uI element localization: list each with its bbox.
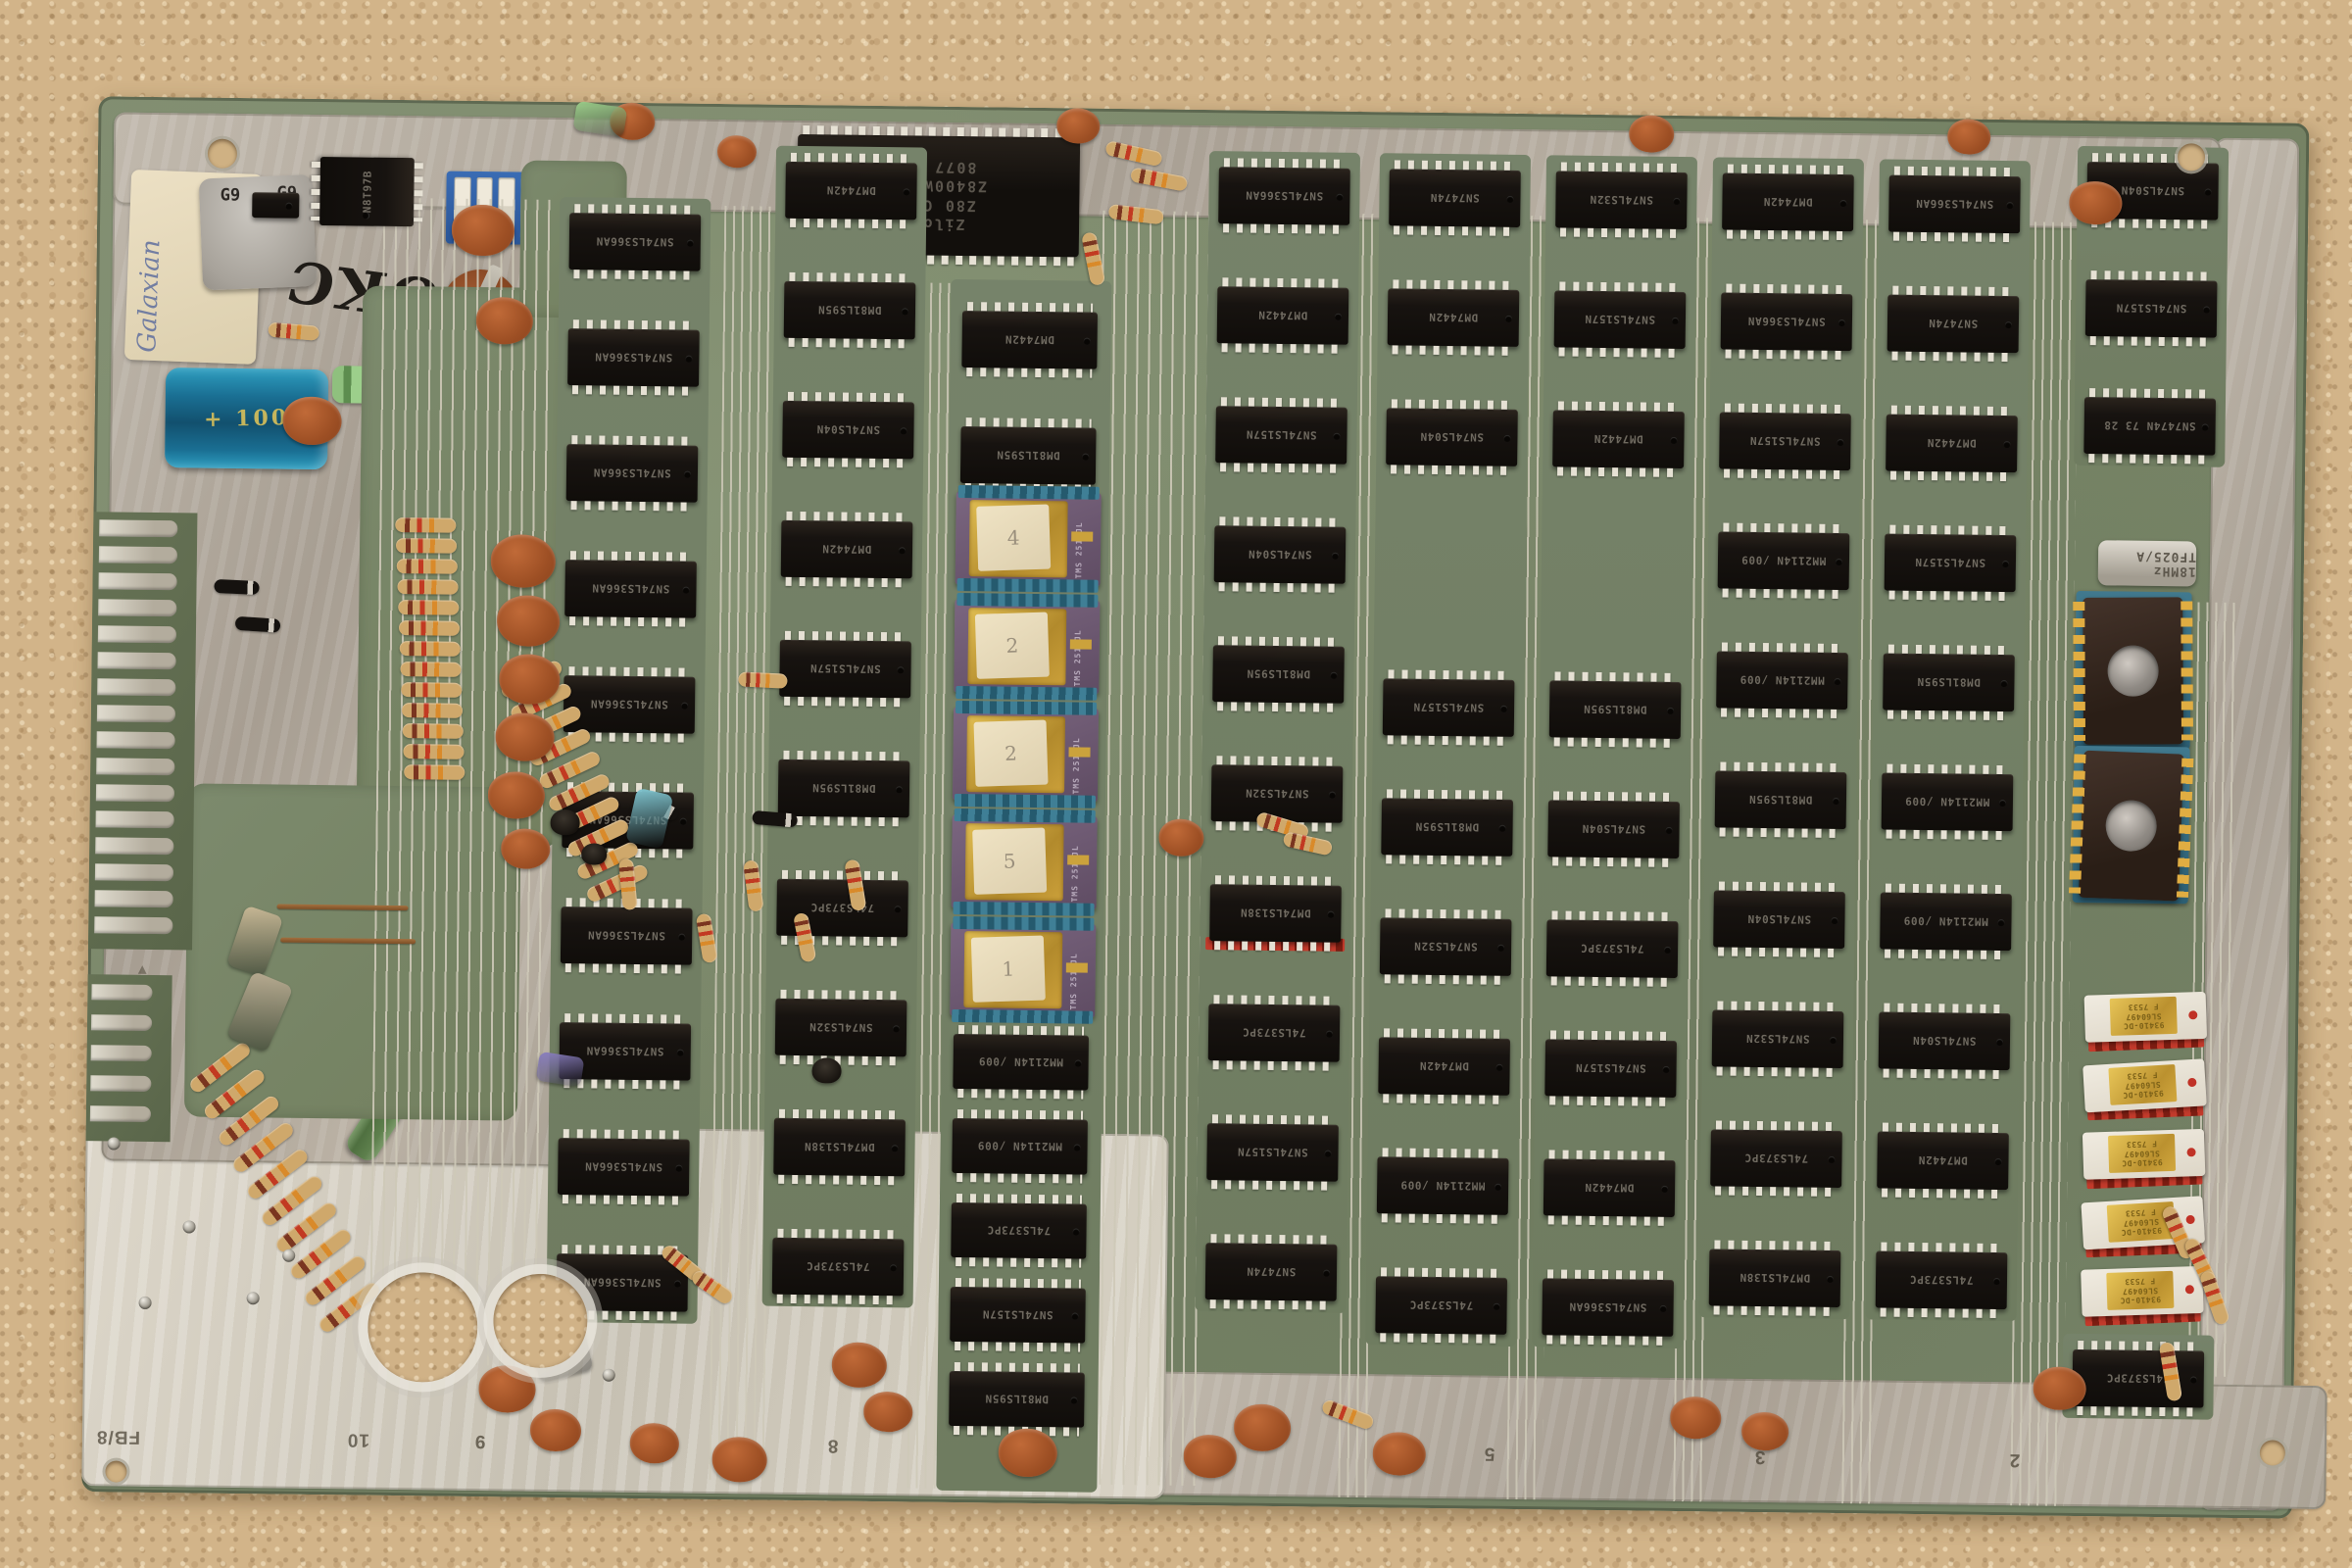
resistor xyxy=(395,517,456,533)
eprom-socket-bottom xyxy=(955,686,1097,701)
ic-pins-bottom xyxy=(1882,1189,2003,1200)
edge-finger xyxy=(95,863,173,881)
ic-chip: DM7442N xyxy=(785,162,917,220)
ic-pins-bottom xyxy=(1893,232,2015,243)
eprom-paper-label: 4 xyxy=(976,505,1051,571)
ic-chip: SN74LS366AN xyxy=(564,560,697,618)
ic-part-number: SN7474N 73 28 xyxy=(2083,397,2216,456)
ic-part-number: SN74LS04N xyxy=(1879,1012,2011,1071)
diode xyxy=(235,616,281,633)
ic-part-number: SN74LS366AN xyxy=(566,444,699,503)
ic-pins-bottom xyxy=(1557,466,1679,477)
ceramic-disc-capacitor xyxy=(478,1365,536,1412)
ic-chip: MM2114N /009 xyxy=(1716,651,1848,710)
ic-chip: DM7442N xyxy=(961,311,1098,369)
ic-part-number: SN74LS32N xyxy=(1380,917,1512,976)
ceramic-disc-capacitor xyxy=(530,1409,582,1451)
ceramic-disc-capacitor xyxy=(1373,1432,1427,1476)
ic-chip: DM81LS95N xyxy=(960,426,1097,485)
mounting-hole xyxy=(208,139,237,169)
ic-pins-bottom xyxy=(1222,343,1344,354)
diode xyxy=(214,579,260,595)
ic-part-number: DM74LS138N xyxy=(1709,1249,1841,1307)
ic-pins-bottom xyxy=(966,367,1092,378)
ic-part-number: DM81LS95N xyxy=(1381,798,1513,857)
eprom-gold-tab xyxy=(1068,748,1090,758)
ic-pins-bottom xyxy=(780,1055,902,1066)
ic-chip: N8T97B xyxy=(319,157,415,226)
ic-chip: SN74LS366AN xyxy=(1721,292,1853,351)
bottom-position-number: 8 xyxy=(827,1434,839,1455)
ic-chip: SN74LS366AN xyxy=(1888,175,2021,234)
ic-pins-bottom xyxy=(1214,941,1336,952)
ceramic-disc-capacitor xyxy=(1056,108,1100,144)
ic-pins-bottom xyxy=(787,458,908,468)
white-ceramic-ram-chip: 93410-DCSL60497F 7533 xyxy=(2084,992,2207,1043)
ceramic-disc-capacitor xyxy=(1629,115,1674,152)
ic-chip: DM81LS95N xyxy=(949,1371,1085,1428)
windowed-eprom-chip xyxy=(2079,751,2184,902)
eprom-paper-label: 1 xyxy=(971,936,1046,1003)
ic-part-number: MM2114N /009 xyxy=(1882,773,2014,832)
ic-chip: SN74LS157N xyxy=(1206,1123,1339,1182)
ic-pins-bottom xyxy=(571,501,693,512)
crystal-oscillator: 18MHz TF025/A xyxy=(2098,540,2197,586)
white-ram-red-dot xyxy=(2185,1215,2195,1225)
ic-part-number: SN74LS366AN xyxy=(569,213,702,271)
ic-chip: DM81LS95N xyxy=(1212,645,1345,704)
ic-pins-bottom xyxy=(957,1089,1083,1100)
ic-chip: 74LS373PC xyxy=(1876,1250,2008,1309)
ic-chip: MM2114N /009 xyxy=(1377,1156,1509,1215)
ic-pins-bottom xyxy=(1889,591,2011,602)
edge-finger xyxy=(91,1045,152,1061)
ic-pins-bottom xyxy=(956,1173,1082,1184)
rivet xyxy=(603,1369,615,1382)
ic-pins-bottom xyxy=(1884,1069,2005,1080)
ic-part-number: SN74LS157N xyxy=(2085,279,2218,338)
eprom-quartz-window xyxy=(2107,646,2158,697)
ic-pins-bottom xyxy=(1724,469,1845,480)
ic-part-number: DM74LS138N xyxy=(773,1118,906,1177)
ic-pins-bottom xyxy=(1213,1060,1335,1071)
ic-pins-bottom xyxy=(569,616,691,627)
ic-part-number: SN74LS32N xyxy=(1712,1009,1844,1068)
ic-pins-bottom xyxy=(2090,336,2212,347)
ic-chip: SN7474N xyxy=(1887,295,2020,354)
bottom-position-number: 2 xyxy=(2009,1448,2021,1470)
white-ram-gold-lid: 93410-DCSL60497F 7533 xyxy=(2106,1271,2174,1310)
eprom-gold-tab xyxy=(1070,640,1092,650)
ic-pins-bottom xyxy=(563,1079,685,1090)
ic-pins-bottom xyxy=(1219,582,1341,593)
white-ram-marking: 93410-DCSL60497F 7533 xyxy=(2108,1134,2176,1173)
ic-part-number: DM81LS95N xyxy=(778,759,910,818)
transistor xyxy=(811,1057,841,1083)
ic-chip: SN74LS04N xyxy=(1879,1012,2011,1071)
ic-pins-bottom xyxy=(1383,1094,1504,1104)
transistor xyxy=(550,809,579,835)
ic-chip: SN74LS157N xyxy=(1383,678,1515,737)
ic-part-number: MM2114N /009 xyxy=(952,1118,1088,1175)
eprom-socket-top xyxy=(958,485,1100,500)
edge-finger xyxy=(96,784,174,802)
edge-finger xyxy=(98,572,176,590)
resistor xyxy=(403,723,464,739)
ic-chip: SN74LS366AN xyxy=(567,328,700,387)
ic-part-number: SN74LS04N xyxy=(1214,525,1347,584)
edge-finger xyxy=(97,705,175,722)
grey-cap-text-1: G9 xyxy=(219,185,240,289)
ic-part-number: SN7474N xyxy=(1887,295,2020,354)
ic-part-number: 74LS373PC xyxy=(1208,1004,1341,1062)
corner-stamp: FB/8 xyxy=(96,1425,140,1447)
ic-pins-bottom xyxy=(789,338,910,349)
ic-part-number: SN74LS366AN xyxy=(1721,292,1853,351)
eprom-socket-top xyxy=(955,701,1097,715)
ceramic-disc-capacitor xyxy=(1158,819,1203,857)
ic-part-number: SN74LS366AN xyxy=(564,560,697,618)
ic-part-number: DM81LS95N xyxy=(1212,645,1345,704)
eprom-paper-label: 5 xyxy=(972,828,1047,895)
ceramic-disc-capacitor xyxy=(2033,1366,2086,1410)
ic-part-number: DM81LS95N xyxy=(1549,680,1682,739)
ic-chip: DM7442N xyxy=(781,520,913,579)
ceramic-disc-capacitor xyxy=(1947,119,1990,155)
ic-chip: SN74LS04N xyxy=(1547,800,1680,858)
ic-chip: 74LS373PC xyxy=(772,1238,905,1297)
resistor xyxy=(403,744,464,759)
eprom-gold-tab xyxy=(1066,963,1088,973)
ic-chip: DM81LS95N xyxy=(1549,680,1682,739)
ic-part-number: SN74LS32N xyxy=(775,999,907,1057)
ic-chip: SN74LS157N xyxy=(1885,534,2017,593)
ceramic-disc-capacitor xyxy=(630,1423,679,1464)
ic-pins-bottom xyxy=(955,1257,1081,1268)
edge-finger xyxy=(98,625,176,643)
ic-chip: DM7442N xyxy=(1552,410,1685,468)
ic-pins-bottom xyxy=(1546,1335,1668,1346)
ic-pins-bottom xyxy=(2077,1406,2198,1417)
ic-pins-bottom xyxy=(1391,465,1512,475)
eprom-socket-bottom xyxy=(955,794,1096,808)
ic-part-number: MM2114N /009 xyxy=(1880,893,2012,952)
white-ram-marking: 93410-DCSL60497F 7533 xyxy=(2106,1271,2174,1310)
ic-pins-bottom xyxy=(1549,1096,1671,1106)
ic-pins-bottom xyxy=(1220,463,1342,473)
ceramic-disc-capacitor xyxy=(2069,181,2123,225)
ic-chip: DM7442N xyxy=(1217,286,1349,345)
ic-chip: SN74LS157N xyxy=(1719,412,1851,470)
resistor xyxy=(397,559,458,574)
ic-pins-bottom xyxy=(1723,589,1844,600)
ic-pins-bottom xyxy=(1727,230,1848,241)
ic-pins-bottom xyxy=(1718,948,1839,958)
mounting-hole xyxy=(105,1460,126,1482)
card-edge-tab xyxy=(86,974,172,1142)
ic-chip: SN74LS157N xyxy=(1215,406,1347,465)
ic-chip: SN74LS157N xyxy=(779,640,911,699)
ic-chip: SN74LS366AN xyxy=(558,1138,690,1197)
ic-pins-bottom xyxy=(1211,1180,1333,1191)
edge-finger xyxy=(94,916,172,934)
eprom-paper-label: 2 xyxy=(973,720,1048,787)
ic-chip: SN74LS04N xyxy=(1386,408,1518,466)
ic-chip: DM81LS95N xyxy=(1715,770,1847,829)
resistor xyxy=(401,682,462,698)
ic-pins-bottom xyxy=(1393,345,1514,356)
ic-pins-bottom xyxy=(1388,735,1509,746)
ic-part-number: SN74LS32N xyxy=(1555,171,1688,229)
ic-chip: 74LS373PC xyxy=(951,1202,1087,1259)
eprom-gold-tab xyxy=(1071,532,1093,542)
ic-part-number: SN74LS157N xyxy=(1885,534,2017,593)
ic-chip: DM81LS95N xyxy=(784,281,916,340)
ic-pins-bottom xyxy=(1560,227,1682,238)
ic-pins-bottom xyxy=(1714,1305,1836,1316)
ic-pins-bottom xyxy=(1881,1308,2002,1319)
ic-part-number: 74LS373PC xyxy=(772,1238,905,1297)
edge-finger xyxy=(98,599,176,616)
ic-pins-bottom xyxy=(1885,950,2006,960)
resistor xyxy=(396,538,457,554)
eprom-gold-pins-left xyxy=(2073,602,2085,741)
edge-finger xyxy=(97,731,175,749)
ic-chip: 74LS373PC xyxy=(1375,1276,1507,1335)
ic-chip: DM81LS95N xyxy=(1883,654,2015,712)
ic-pins-bottom xyxy=(1223,223,1345,234)
ic-chip: MM2114N /009 xyxy=(1718,531,1850,590)
edge-finger xyxy=(91,1014,152,1031)
ic-part-number: SN74LS157N xyxy=(1554,290,1687,349)
ic-part-number: SN74LS157N xyxy=(1206,1123,1339,1182)
ic-part-number: SN7474N xyxy=(1389,169,1521,227)
white-ram-red-dot xyxy=(2186,1148,2195,1156)
white-ceramic-ram-chip: 93410-DCSL60497F 7533 xyxy=(2082,1129,2205,1180)
ic-chip: SN74LS32N xyxy=(1555,171,1688,229)
ic-pins-bottom xyxy=(1720,828,1841,839)
white-ram-marking: 93410-DCSL60497F 7533 xyxy=(2110,997,2178,1036)
mounting-hole xyxy=(2178,143,2205,171)
ic-chip: SN74LS32N xyxy=(1712,1009,1844,1068)
eprom-gold-tab xyxy=(1067,856,1089,865)
ic-pins-bottom xyxy=(1715,1186,1837,1197)
card-edge-connector xyxy=(88,512,197,950)
eprom-chip: TMS 2516JL2 xyxy=(953,707,1099,803)
white-ram-red-dot xyxy=(2187,1078,2197,1088)
ic-part-number: DM7442N xyxy=(1217,286,1349,345)
edge-finger xyxy=(98,652,176,669)
resistor xyxy=(738,671,788,688)
ic-chip: 74LS373PC xyxy=(1710,1129,1842,1188)
ic-pins-bottom xyxy=(1559,347,1681,358)
ic-part-number: DM7442N xyxy=(1543,1158,1676,1217)
ic-part-number: SN74LS157N xyxy=(950,1287,1086,1344)
ic-chip: DM7442N xyxy=(1378,1037,1510,1096)
ic-pins-bottom xyxy=(1554,737,1676,748)
ic-pins-bottom xyxy=(1890,471,2012,482)
windowed-eprom-chip xyxy=(2082,597,2183,745)
ic-part-number: SN74LS157N xyxy=(1383,678,1515,737)
ic-part-number: 74LS373PC xyxy=(1710,1129,1842,1188)
ceramic-disc-capacitor xyxy=(711,1437,767,1483)
ic-part-number: SN74LS366AN xyxy=(1888,175,2021,234)
ic-pins-bottom xyxy=(1548,1215,1670,1226)
white-ceramic-ram-chip: 93410-DCSL60497F 7533 xyxy=(2082,1058,2207,1112)
eprom-socket-top xyxy=(955,808,1096,823)
rivet xyxy=(139,1297,152,1309)
ceramic-disc-capacitor xyxy=(495,712,555,761)
photo-of-circuit-board: Zilog Z80 CPU Z8400W DD 8077 PS 18MHz TF… xyxy=(0,0,2352,1568)
ic-chip: 74LS373PC xyxy=(1546,919,1679,978)
ceramic-disc-capacitor xyxy=(1183,1435,1237,1479)
ic-pins-bottom xyxy=(1717,1066,1838,1077)
ic-part-number: SN74LS157N xyxy=(1544,1039,1677,1098)
eprom-chip: TMS 2516JL4 xyxy=(955,491,1102,587)
white-ram-red-dot xyxy=(2188,1010,2197,1019)
edge-finger xyxy=(99,546,177,563)
ceramic-disc-capacitor xyxy=(476,297,534,344)
ic-chip: SN7474N 73 28 xyxy=(2083,397,2216,456)
ic-pins-bottom xyxy=(1725,350,1846,361)
ic-pins-bottom xyxy=(1887,710,2009,721)
ic-part-number: SN74LS04N xyxy=(1713,890,1845,949)
resistor xyxy=(399,620,460,636)
ic-pins-bottom xyxy=(1886,830,2008,841)
white-ram-gold-lid: 93410-DCSL60497F 7533 xyxy=(2110,997,2178,1036)
ic-chip: SN74LS04N xyxy=(782,401,914,460)
ic-pins-top xyxy=(414,163,423,221)
ic-pins-bottom xyxy=(2088,454,2210,465)
ic-chip: 74LS373PC xyxy=(2072,1349,2204,1408)
ic-chip: SN74LS157N xyxy=(950,1287,1086,1344)
ceramic-disc-capacitor xyxy=(282,397,342,446)
ceramic-disc-capacitor xyxy=(1234,1404,1292,1451)
ic-pins-bottom xyxy=(563,1195,684,1205)
eprom-chip: TMS 2516JL1 xyxy=(950,922,1096,1018)
ic-part-number: DM81LS95N xyxy=(949,1371,1085,1428)
ic-part-number: DM81LS95N xyxy=(1883,654,2015,712)
ic-chip: SN74LS366AN xyxy=(569,213,702,271)
ic-part-number: 74LS373PC xyxy=(951,1202,1087,1259)
ceramic-disc-capacitor xyxy=(832,1342,888,1388)
eprom-socket-bottom xyxy=(957,578,1099,593)
ceramic-disc-capacitor xyxy=(497,595,561,647)
ic-chip: MM2114N /009 xyxy=(1882,773,2014,832)
eprom-gold-pins-right xyxy=(2177,759,2193,898)
ic-part-number: SN7474N xyxy=(1205,1243,1338,1301)
ic-chip: DM7442N xyxy=(1886,415,2018,473)
ic-chip: SN74LS32N xyxy=(775,999,907,1057)
ic-chip: DM81LS95N xyxy=(1381,798,1513,857)
ceramic-disc-capacitor xyxy=(491,534,557,588)
ic-chip: DM74LS138N xyxy=(773,1118,906,1177)
ceramic-disc-capacitor xyxy=(499,654,561,705)
transistor xyxy=(581,843,607,864)
ic-chip: SN7474N xyxy=(1389,169,1521,227)
pcb-board: Zilog Z80 CPU Z8400W DD 8077 PS 18MHz TF… xyxy=(81,96,2309,1518)
ic-chip: DM7442N xyxy=(1388,288,1520,347)
rivet xyxy=(182,1220,195,1233)
ic-pins-bottom xyxy=(955,1342,1080,1352)
ic-chip: MM2114N /009 xyxy=(1880,893,2012,952)
ic-part-number: 74LS373PC xyxy=(2072,1349,2204,1408)
ic-part-number: 74LS373PC xyxy=(1876,1250,2008,1309)
ic-part-number: DM7442N xyxy=(1722,172,1854,231)
rivet xyxy=(108,1137,121,1150)
ic-chip: DM7442N xyxy=(1722,172,1854,231)
ic-chip: 74LS373PC xyxy=(1208,1004,1341,1062)
white-ceramic-ram-chip: 93410-DCSL60497F 7533 xyxy=(2081,1266,2203,1317)
ic-part-number: SN74LS366AN xyxy=(1218,167,1350,225)
ceramic-disc-capacitor xyxy=(998,1429,1057,1478)
corner-stamp-text: FB/8 xyxy=(96,1426,140,1447)
ic-pins-bottom xyxy=(1721,709,1842,719)
ic-part-number: SN74LS04N xyxy=(782,401,914,460)
rivet xyxy=(247,1292,260,1304)
edge-finger xyxy=(97,678,175,696)
ic-pins-bottom xyxy=(784,697,906,708)
ic-pins-bottom xyxy=(1386,855,1507,865)
ic-pins-bottom xyxy=(1217,702,1339,712)
edge-finger xyxy=(90,1075,151,1092)
ic-pins-bottom xyxy=(565,963,687,974)
eprom-socket-top xyxy=(956,593,1098,608)
ic-pins-bottom xyxy=(1210,1299,1332,1310)
ceramic-disc-capacitor xyxy=(452,205,515,257)
ic-chip: SN74LS366AN xyxy=(1542,1278,1674,1337)
ic-chip: SN74LS366AN xyxy=(566,444,699,503)
ic-pins-bottom xyxy=(790,219,911,229)
eprom-chip: TMS 2516JL5 xyxy=(952,814,1098,910)
ic-chip: SN74LS157N xyxy=(2085,279,2218,338)
ic-pins-bottom xyxy=(1891,352,2013,363)
ic-part-number: DM7442N xyxy=(961,311,1098,369)
ic-pins-bottom xyxy=(783,816,905,827)
ic-chip: SN74LS366AN xyxy=(561,906,693,965)
ceramic-disc-capacitor xyxy=(501,828,550,869)
ceramic-disc-capacitor xyxy=(863,1392,912,1433)
ic-part-number: DM81LS95N xyxy=(960,426,1097,485)
eprom-gold-pins-right xyxy=(2180,601,2193,740)
ic-part-number: SN74LS366AN xyxy=(563,675,696,734)
ic-part-number: SN74LS32N xyxy=(1211,764,1344,823)
ceramic-disc-capacitor xyxy=(717,135,757,168)
ic-pins-bottom xyxy=(1382,1213,1503,1224)
ic-chip: SN74LS157N xyxy=(1554,290,1687,349)
ic-chip: SN74LS04N xyxy=(1214,525,1347,584)
ic-chip: DM74LS138N xyxy=(1709,1249,1841,1307)
ic-part-number: SN74LS04N xyxy=(1547,800,1680,858)
bottom-position-number: 3 xyxy=(1754,1445,1766,1467)
edge-finger xyxy=(91,984,152,1001)
ic-chip: MM2114N /009 xyxy=(952,1118,1088,1175)
eprom-socket-bottom xyxy=(954,902,1095,916)
ic-chip: SN74LS32N xyxy=(1380,917,1512,976)
eprom-chip: TMS 2516JL2 xyxy=(954,599,1100,695)
ic-pins-bottom xyxy=(1551,976,1673,987)
rivet xyxy=(282,1249,295,1262)
bottom-position-number: 9 xyxy=(474,1430,486,1451)
bottom-position-number: 10 xyxy=(347,1428,369,1449)
ic-pins-bottom xyxy=(786,577,907,588)
edge-finger xyxy=(96,758,174,775)
ic-chip: SN74LS366AN xyxy=(1218,167,1350,225)
ic-pins-bottom xyxy=(777,1295,899,1305)
white-ram-marking: 93410-DCSL60497F 7533 xyxy=(2108,1064,2177,1105)
ic-pins-bottom xyxy=(778,1175,900,1186)
resistor xyxy=(397,579,458,595)
